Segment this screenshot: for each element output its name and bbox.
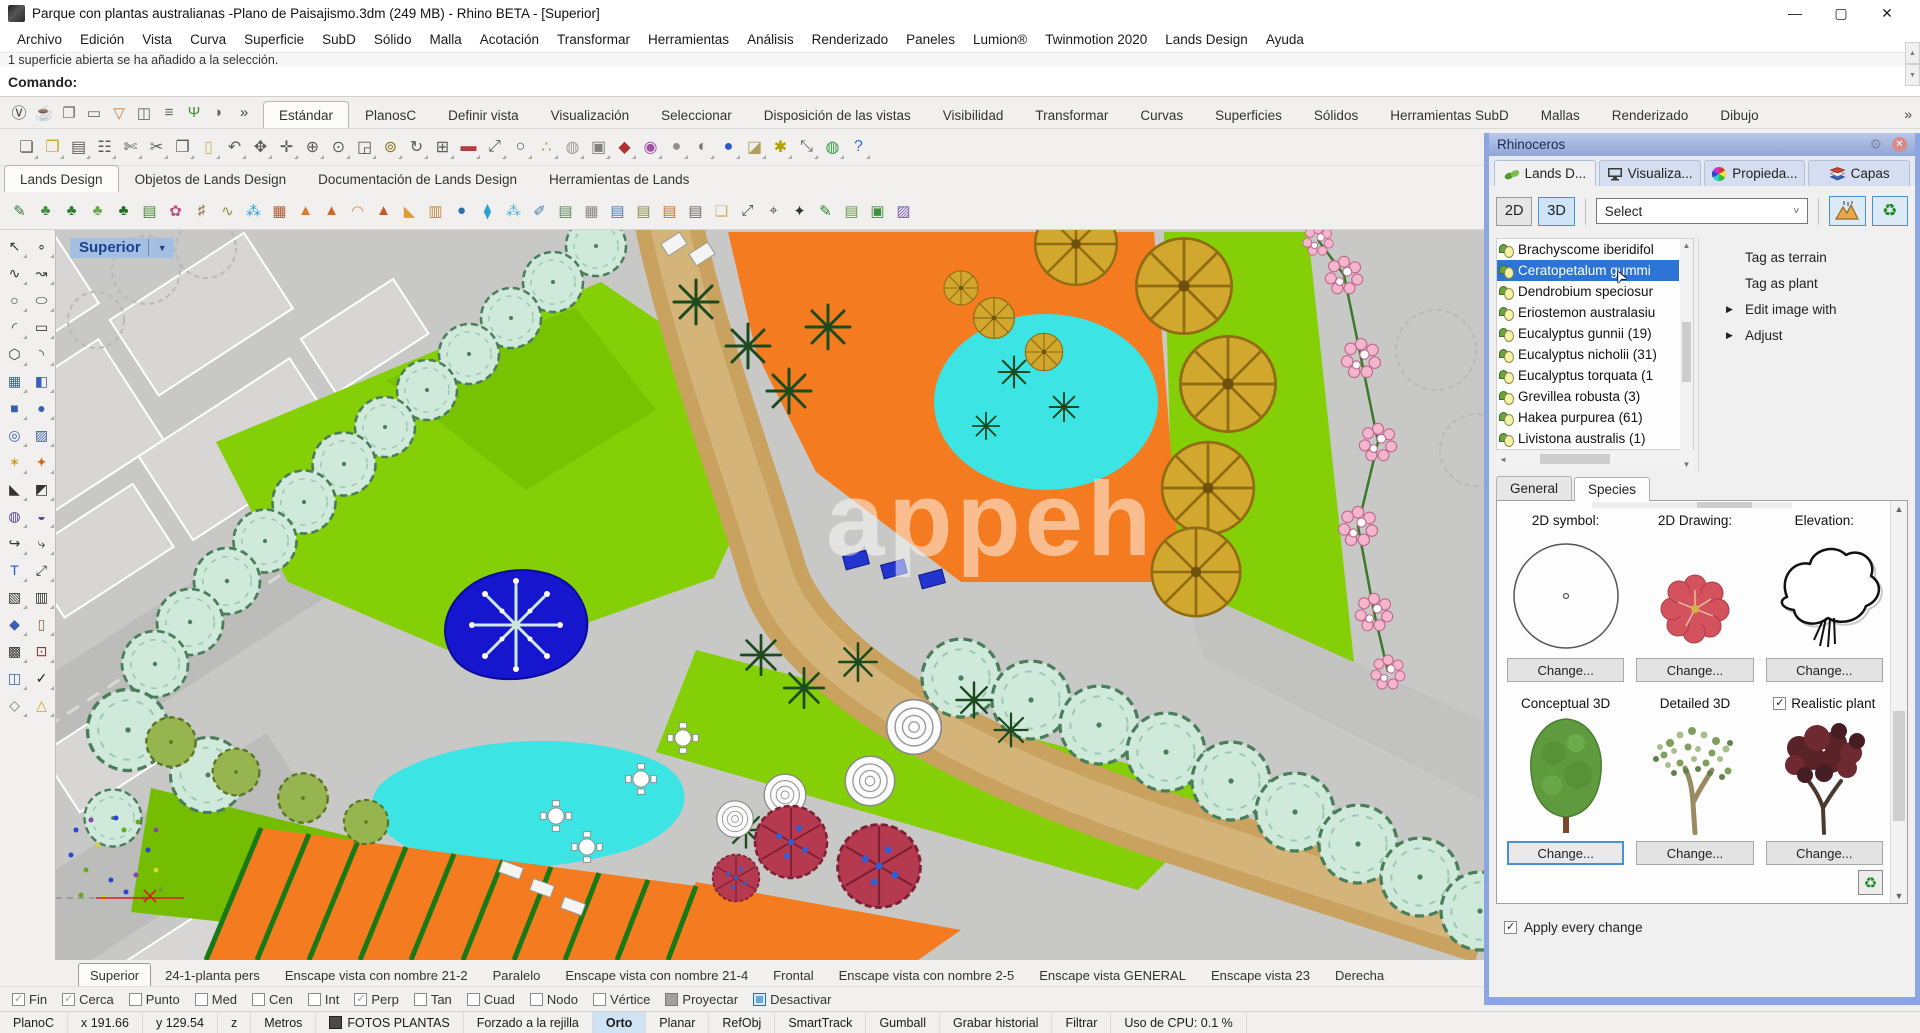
osnap-label: Med — [212, 992, 237, 1007]
scroll-down-icon[interactable]: ▼ — [1891, 888, 1907, 903]
copy-layer-icon[interactable]: ▥ — [29, 584, 54, 610]
point-edit-icon[interactable]: ∴ — [534, 134, 559, 161]
viewport-tab[interactable]: Enscape vista GENERAL — [1028, 964, 1197, 986]
color-wheel-icon[interactable]: ◉ — [638, 134, 663, 161]
status-item[interactable]: Planar — [646, 1012, 709, 1033]
cone-icon[interactable]: △ — [29, 692, 54, 718]
rotate-view-icon[interactable]: ↻ — [404, 134, 429, 161]
osnap-toggle[interactable]: Punto — [129, 992, 180, 1007]
species-list-item[interactable]: Eucalyptus nicholii (31) — [1497, 344, 1679, 365]
zoom-window-icon[interactable]: ◲ — [352, 134, 377, 161]
snapshot-icon[interactable]: ◪ — [742, 134, 767, 161]
species-list-item[interactable]: Eucalyptus gunnii (19) — [1497, 323, 1679, 344]
terrain-valley-icon[interactable]: ▲ — [320, 198, 343, 224]
plant-pair-icon[interactable]: ♣ — [34, 198, 57, 224]
surface-patch-icon[interactable]: ◧ — [29, 368, 54, 394]
globe-icon[interactable]: ● — [450, 198, 473, 224]
viewport-title[interactable]: Superior ▼ — [70, 238, 174, 258]
status-item[interactable]: Metros — [251, 1012, 316, 1033]
scale-icon[interactable]: ⤢ — [29, 557, 54, 583]
fillet-icon[interactable]: ↪ — [2, 530, 27, 556]
realistic-plant-toggle[interactable]: Realistic plant — [1764, 686, 1885, 713]
sync-button[interactable]: ♻ — [1872, 196, 1908, 226]
arc-icon[interactable]: ◜ — [2, 314, 27, 340]
trim-icon[interactable]: ◣ — [2, 476, 27, 502]
lands-tab[interactable]: Objetos de Lands Design — [119, 165, 303, 192]
new-file-icon[interactable]: ❏ — [14, 134, 39, 161]
zoom-in-icon[interactable]: ⊕ — [300, 134, 325, 161]
scissors-icon[interactable]: ✂ — [144, 134, 169, 161]
menu-item[interactable]: Renderizado — [803, 30, 898, 49]
toolbar-tab[interactable]: Renderizado — [1596, 101, 1705, 128]
osnap-toggle[interactable]: Vértice — [593, 992, 650, 1007]
species-name: Eucalyptus gunnii (19) — [1518, 326, 1652, 341]
toolbar-tab[interactable]: Definir vista — [432, 101, 535, 128]
copy-icon[interactable]: ❐ — [170, 134, 195, 161]
circle-snap-icon[interactable]: ○ — [508, 134, 533, 161]
explode-icon[interactable]: ✶ — [2, 449, 27, 475]
surface-grid-icon[interactable]: ▨ — [29, 422, 54, 448]
arrange-icon[interactable]: ▧ — [2, 584, 27, 610]
render-sphere-icon[interactable]: ● — [716, 134, 741, 161]
panel-title-label: Rhinoceros — [1497, 137, 1565, 152]
scroll-down-icon[interactable]: ▼ — [1680, 458, 1693, 471]
species-list-container: Brachyscome iberidifol Ceratopetalum gum… — [1496, 238, 1694, 472]
context-menu-item[interactable]: Tag as plant — [1745, 276, 1908, 291]
tag-terrain-button[interactable] — [1829, 196, 1865, 226]
change-conceptual-3d-button[interactable]: Change... — [1507, 841, 1624, 865]
status-item[interactable]: SmartTrack — [775, 1012, 866, 1033]
tab-lands-design[interactable]: Lands D... — [1494, 160, 1596, 186]
zoom-extents-icon[interactable]: ⊚ — [378, 134, 403, 161]
paste-icon[interactable]: ▯ — [196, 134, 221, 161]
status-item[interactable]: y 129.54 — [143, 1012, 218, 1033]
clipper-icon[interactable]: ◗ — [208, 101, 230, 125]
viewport-tab[interactable]: Superior — [78, 963, 151, 986]
toolbar-tab[interactable]: Visualización — [535, 101, 646, 128]
command-prompt-label: Comando: — [8, 74, 77, 90]
tree-icon[interactable]: ♣ — [60, 198, 83, 224]
osnap-label: Nodo — [547, 992, 578, 1007]
toolbar-tab[interactable]: Curvas — [1124, 101, 1199, 128]
detail-vscrollbar[interactable]: ▲ ▼ — [1890, 501, 1907, 903]
video-list-icon[interactable]: ▤ — [840, 198, 863, 224]
species-list-item[interactable]: Dendrobium speciosur — [1497, 281, 1679, 302]
mesh-icon[interactable]: ◇ — [2, 692, 27, 718]
flowerbed-icon[interactable]: ✿ — [164, 198, 187, 224]
context-menu-item[interactable]: Adjust — [1745, 328, 1908, 343]
toolbar-tab-strip: Ⓥ☕❐▭▽◫≡Ψ◗» EstándarPlanosCDefinir vistaV… — [0, 97, 1920, 129]
change-symbol-2d-button[interactable]: Change... — [1507, 658, 1624, 682]
plant-list-doc-icon[interactable]: ▤ — [554, 198, 577, 224]
viewport-title-label: Superior — [79, 239, 141, 256]
extract-icon[interactable]: ✦ — [29, 449, 54, 475]
context-menu-item[interactable]: Tag as terrain — [1745, 250, 1908, 265]
check-icon[interactable]: ✓ — [29, 665, 54, 691]
menu-item[interactable]: Acotación — [471, 30, 548, 49]
toolbar-tab[interactable]: Mallas — [1525, 101, 1596, 128]
osnap-checkbox[interactable] — [593, 993, 606, 1006]
autumn-doc-icon[interactable]: ▤ — [658, 198, 681, 224]
osnap-toggle[interactable]: Fin — [12, 992, 47, 1007]
circle-icon[interactable]: ○ — [2, 287, 27, 313]
text-icon[interactable]: T — [2, 557, 27, 583]
scale-arrows-icon[interactable]: ⤡ — [794, 134, 819, 161]
water-drop-icon[interactable]: ⧫ — [476, 198, 499, 224]
help-icon[interactable]: ? — [846, 134, 871, 161]
forest-icon[interactable]: ♣ — [112, 198, 135, 224]
panel-gear-icon[interactable]: ⚙ — [1869, 136, 1882, 153]
detail-hscrollbar[interactable] — [1592, 502, 1792, 508]
surface-points-icon[interactable]: ▦ — [2, 368, 27, 394]
osnap-checkbox[interactable] — [62, 993, 75, 1006]
species-list-item[interactable]: Brachyscome iberidifol — [1497, 239, 1679, 260]
viewport-tab-bar: Superior24-1-planta persEnscape vista co… — [0, 960, 1484, 986]
site-plan[interactable]: appeh — [56, 230, 1484, 960]
loft-icon[interactable]: ◫ — [2, 665, 27, 691]
osnap-label: Cerca — [79, 992, 114, 1007]
species-name: Livistona australis (1) — [1518, 431, 1646, 446]
lock-icon[interactable]: ▣ — [586, 134, 611, 161]
maximize-button[interactable]: ▢ — [1818, 1, 1864, 25]
scroll-left-icon[interactable]: ◄ — [1496, 455, 1510, 464]
status-item[interactable]: Gumball — [866, 1012, 940, 1033]
shaded-sphere-icon[interactable]: ● — [664, 134, 689, 161]
osnap-checkbox[interactable] — [308, 993, 321, 1006]
osnap-toggle[interactable]: Perp — [354, 992, 398, 1007]
zoning-doc-icon[interactable]: ▦ — [580, 198, 603, 224]
ellipse-icon[interactable]: ⬭ — [29, 287, 54, 313]
undo-icon[interactable]: ↶ — [222, 134, 247, 161]
lands-design-tabs: Lands DesignObjetos de Lands DesignDocum… — [0, 166, 1484, 192]
earth-icon[interactable]: ◍ — [820, 134, 845, 161]
toolbar-tab[interactable]: Disposición de las vistas — [748, 101, 927, 128]
fence-icon[interactable]: ♯ — [190, 198, 213, 224]
sync-realistic-button[interactable]: ♻ — [1858, 870, 1883, 895]
infinite-plane-icon[interactable]: ▽ — [108, 101, 130, 125]
select-dropdown[interactable]: Select ˅ — [1596, 198, 1809, 224]
apply-change-checkbox[interactable] — [1504, 921, 1517, 934]
scroll-down-icon[interactable]: ▼ — [1905, 64, 1920, 86]
watering-doc-icon[interactable]: ▤ — [606, 198, 629, 224]
terrain-slope-icon[interactable]: ◣ — [398, 198, 421, 224]
osnap-toggle[interactable]: Proyectar — [665, 992, 738, 1007]
scroll-up-icon[interactable]: ▲ — [1680, 239, 1693, 252]
leaf-icon — [1504, 167, 1520, 181]
osnap-checkbox[interactable] — [530, 993, 543, 1006]
torus-icon[interactable]: ◎ — [2, 422, 27, 448]
command-scrollbar[interactable]: ▲ ▼ — [1905, 42, 1920, 86]
species-list-item[interactable]: Hakea purpurea (61) — [1497, 407, 1679, 428]
four-viewports-icon[interactable]: ⊞ — [430, 134, 455, 161]
render-photo-icon[interactable]: ▨ — [892, 198, 915, 224]
status-item[interactable]: PlanoC — [0, 1012, 68, 1033]
status-item[interactable]: FOTOS PLANTAS — [316, 1012, 463, 1033]
walk-person-icon[interactable]: ✦ — [788, 198, 811, 224]
panel-title-bar[interactable]: Rhinoceros ⚙ ✕ — [1489, 133, 1915, 156]
lands-tab[interactable]: Lands Design — [4, 165, 119, 192]
status-item[interactable]: x 191.66 — [68, 1012, 143, 1033]
light-gen-icon[interactable]: ≡ — [158, 101, 180, 125]
boolean-diff-icon[interactable]: ◒ — [29, 503, 54, 529]
earthmoving-truck-icon[interactable]: ▥ — [424, 198, 447, 224]
species-list-item[interactable]: Livistona australis (1) — [1497, 428, 1679, 449]
menu-item[interactable]: Análisis — [738, 30, 803, 49]
osnap-checkbox[interactable] — [665, 993, 678, 1006]
viewport[interactable]: Superior ▼ — [55, 230, 1484, 960]
plant-icon — [1499, 327, 1514, 341]
species-name: Hakea purpurea (61) — [1518, 410, 1643, 425]
command-prompt[interactable]: Comando: — [0, 67, 1920, 97]
menu-item[interactable]: Paneles — [897, 30, 964, 49]
terrain-edit-icon[interactable]: ✎ — [8, 198, 31, 224]
zoom-dynamic-icon[interactable]: ⊙ — [326, 134, 351, 161]
osnap-toggle[interactable]: Cuad — [467, 992, 515, 1007]
polyline-icon[interactable]: ∿ — [2, 260, 27, 286]
status-item[interactable]: Orto — [593, 1012, 646, 1033]
viewport-tab[interactable]: Enscape vista con nombre 21-4 — [554, 964, 759, 986]
species-name: Grevillea robusta (3) — [1518, 389, 1640, 404]
menu-item[interactable]: Edición — [71, 30, 133, 49]
plant-icon — [1499, 432, 1514, 446]
panel-close-icon[interactable]: ✕ — [1892, 137, 1907, 152]
shrub-row-icon[interactable]: ♣ — [86, 198, 109, 224]
menu-item[interactable]: Twinmotion 2020 — [1036, 30, 1156, 49]
proxy-box-icon[interactable]: ◫ — [133, 101, 155, 125]
toolbar-tab[interactable]: Sólidos — [1298, 101, 1374, 128]
osnap-label: Tan — [431, 992, 452, 1007]
monitor-icon — [1607, 166, 1623, 181]
species-name: Eriostemon australasiu — [1518, 305, 1655, 320]
osnap-label: Cen — [269, 992, 293, 1007]
species-list-vscrollbar[interactable]: ▲ ▼ — [1680, 239, 1693, 471]
change-drawing-2d-button[interactable]: Change... — [1636, 658, 1753, 682]
lands-tab[interactable]: Documentación de Lands Design — [302, 165, 533, 192]
edit-doc-icon[interactable]: ▤ — [632, 198, 655, 224]
irrigation-icon[interactable]: ⁂ — [242, 198, 265, 224]
menu-item[interactable]: Herramientas — [639, 30, 738, 49]
toolbar-overflow-icon[interactable]: » — [233, 101, 255, 125]
tab-general[interactable]: General — [1496, 476, 1572, 500]
change-detailed-3d-button[interactable]: Change... — [1636, 841, 1753, 865]
array-path-icon[interactable]: ⊡ — [29, 638, 54, 664]
toolbar-tab[interactable]: Transformar — [1019, 101, 1124, 128]
hedge-icon[interactable]: ▤ — [138, 198, 161, 224]
sprinklers-icon[interactable]: ⁂ — [502, 198, 525, 224]
hose-icon[interactable]: ✐ — [528, 198, 551, 224]
osnap-checkbox[interactable] — [12, 993, 25, 1006]
viewport-tab[interactable]: Paralelo — [482, 964, 552, 986]
lamp-icon[interactable]: ◍ — [560, 134, 585, 161]
osnap-toggle[interactable]: Med — [195, 992, 237, 1007]
frame-buffer-icon[interactable]: ▭ — [83, 101, 105, 125]
species-list-item[interactable]: Eriostemon australasiu — [1497, 302, 1679, 323]
menu-item[interactable]: Lumion® — [964, 30, 1036, 49]
toolbar-tab[interactable]: Estándar — [263, 101, 349, 128]
status-item[interactable]: Uso de CPU: 0.1 % — [1111, 1012, 1246, 1033]
lands-design-toolbar: ✎♣♣♣♣▤✿♯∿⁂▦▲▲◠▲◣▥●⧫⁂✐▤▦▤▤▤▤❏⤢⌖✦✎▤▣▨ — [0, 192, 1484, 230]
tab-visualization[interactable]: Visualiza... — [1599, 160, 1701, 186]
tab-properties[interactable]: Propieda... — [1704, 160, 1806, 186]
menu-item[interactable]: Malla — [420, 30, 470, 49]
gear-tools-icon[interactable]: ✱ — [768, 134, 793, 161]
osnap-checkbox[interactable] — [753, 993, 766, 1006]
osnap-checkbox[interactable] — [252, 993, 265, 1006]
terrain-icon — [1835, 201, 1859, 221]
pan-hand-icon[interactable]: ✥ — [248, 134, 273, 161]
minimize-button[interactable]: — — [1772, 1, 1818, 25]
halfshade-sphere-icon[interactable]: ◐ — [690, 134, 715, 161]
point-icon[interactable]: ∘ — [29, 233, 54, 259]
tabs-overflow-icon[interactable]: » — [1896, 106, 1920, 128]
plant-book-icon[interactable]: ▣ — [866, 198, 889, 224]
camera-tripod-icon[interactable]: ⌖ — [762, 198, 785, 224]
species-list-hscrollbar[interactable]: ◄ ► — [1496, 452, 1694, 466]
save-icon[interactable]: ▤ — [66, 134, 91, 161]
species-name: Brachyscome iberidifol — [1518, 242, 1654, 257]
elevation-preview — [1764, 530, 1885, 656]
move-icon[interactable]: ✛ — [274, 134, 299, 161]
osnap-checkbox[interactable] — [467, 993, 480, 1006]
osnap-label: Int — [325, 992, 339, 1007]
osnap-label: Cuad — [484, 992, 515, 1007]
blend-icon[interactable]: ⤷ — [29, 530, 54, 556]
toolbar-tab[interactable]: Visibilidad — [927, 101, 1020, 128]
tab-species[interactable]: Species — [1574, 477, 1650, 501]
distance-icon[interactable]: ⤢ — [482, 134, 507, 161]
render-teapot-icon[interactable]: ☕ — [33, 101, 55, 125]
osnap-toggle[interactable]: Tan — [414, 992, 452, 1007]
scroll-up-icon[interactable]: ▲ — [1905, 42, 1920, 64]
change-elevation-button[interactable]: Change... — [1766, 658, 1883, 682]
status-item[interactable]: Grabar historial — [940, 1012, 1052, 1033]
conceptual-3d-label: Conceptual 3D — [1505, 686, 1626, 713]
menu-item[interactable]: Vista — [133, 30, 181, 49]
toolbar-tab[interactable]: Superficies — [1199, 101, 1298, 128]
render-window-icon[interactable]: ❐ — [58, 101, 80, 125]
toolbar-tab[interactable]: Herramientas SubD — [1374, 101, 1525, 128]
osnap-toggle[interactable]: Cerca — [62, 992, 114, 1007]
status-bar: PlanoCx 191.66y 129.54zMetrosFOTOS PLANT… — [0, 1011, 1920, 1033]
path-icon[interactable]: ∿ — [216, 198, 239, 224]
fur-grass-icon[interactable]: Ψ — [183, 101, 205, 125]
osnap-toggle[interactable]: Cen — [252, 992, 293, 1007]
realistic-plant-checkbox[interactable] — [1773, 697, 1786, 710]
status-item[interactable]: z — [218, 1012, 251, 1033]
menu-item[interactable]: Lands Design — [1156, 30, 1257, 49]
scroll-up-icon[interactable]: ▲ — [1891, 501, 1907, 516]
toolbar-tabs: EstándarPlanosCDefinir vistaVisualizació… — [263, 101, 1896, 128]
open-folder-icon[interactable]: ❒ — [40, 134, 65, 161]
context-menu-item[interactable]: Edit image with — [1745, 302, 1908, 317]
2d-button[interactable]: 2D — [1496, 197, 1532, 226]
species-detail-box: ▲ ▼ 2D symbol: 2D Drawing: Elevation: — [1496, 500, 1908, 904]
species-list[interactable]: Brachyscome iberidifol Ceratopetalum gum… — [1496, 238, 1694, 450]
car-display-icon[interactable]: ▬ — [456, 134, 481, 161]
edit-plant-icon[interactable]: ✎ — [814, 198, 837, 224]
array-icon[interactable]: ▩ — [2, 638, 27, 664]
species-list-item[interactable]: Eucalyptus torquata (1 — [1497, 365, 1679, 386]
terrain-dune-icon[interactable]: ◠ — [346, 198, 369, 224]
osnap-checkbox[interactable] — [195, 993, 208, 1006]
viewport-tab[interactable]: Derecha — [1324, 964, 1395, 986]
viewport-tab[interactable]: Enscape vista con nombre 2-5 — [828, 964, 1026, 986]
viewport-menu-caret-icon[interactable]: ▼ — [154, 243, 171, 253]
viewport-tab[interactable]: 24-1-planta pers — [154, 964, 271, 986]
osnap-toggle[interactable]: Int — [308, 992, 339, 1007]
block-icon[interactable]: ◆ — [2, 611, 27, 637]
lands-tab[interactable]: Herramientas de Lands — [533, 165, 705, 192]
boolean-union-icon[interactable]: ◍ — [2, 503, 27, 529]
toolbar-tab[interactable]: Seleccionar — [645, 101, 748, 128]
close-button[interactable]: ✕ — [1864, 1, 1910, 25]
osnap-toggle[interactable]: Desactivar — [753, 992, 831, 1007]
menu-item[interactable]: Ayuda — [1257, 30, 1313, 49]
window-title: Parque con plantas australianas -Plano d… — [32, 6, 600, 21]
menu-item[interactable]: Archivo — [8, 30, 71, 49]
plant-icon — [1499, 306, 1514, 320]
toolbar-tab[interactable]: PlanosC — [349, 101, 432, 128]
menu-item[interactable]: SubD — [313, 30, 365, 49]
species-list-item[interactable]: Ceratopetalum gummi — [1497, 260, 1679, 281]
pipe-icon[interactable]: ▯ — [29, 611, 54, 637]
layer-shield-icon[interactable]: ◆ — [612, 134, 637, 161]
menu-item[interactable]: Sólido — [365, 30, 421, 49]
polygon-icon[interactable]: ⬡ — [2, 341, 27, 367]
cut-sheet-icon[interactable]: ✄ — [118, 134, 143, 161]
rectangle-icon[interactable]: ▭ — [29, 314, 54, 340]
menu-item[interactable]: Transformar — [548, 30, 639, 49]
status-item[interactable]: RefObj — [709, 1012, 775, 1033]
terrain-cut-icon[interactable]: ▲ — [372, 198, 395, 224]
rhino-logo-icon — [8, 5, 25, 22]
viewport-tab[interactable]: Frontal — [762, 964, 824, 986]
osnap-checkbox[interactable] — [354, 993, 367, 1006]
sphere-icon[interactable]: ● — [29, 395, 54, 421]
status-item[interactable]: Filtrar — [1052, 1012, 1111, 1033]
3d-button[interactable]: 3D — [1538, 197, 1574, 226]
tab-layers[interactable]: Capas — [1808, 160, 1910, 186]
osnap-checkbox[interactable] — [129, 993, 142, 1006]
apply-every-change-toggle[interactable]: Apply every change — [1496, 920, 1908, 935]
status-item[interactable]: Forzado a la rejilla — [464, 1012, 593, 1033]
label-icon[interactable]: ❏ — [710, 198, 733, 224]
osnap-checkbox[interactable] — [414, 993, 427, 1006]
print-icon[interactable]: ☷ — [92, 134, 117, 161]
menu-item[interactable]: Curva — [181, 30, 235, 49]
viewport-tab[interactable]: Enscape vista con nombre 21-2 — [274, 964, 479, 986]
split-icon[interactable]: ◩ — [29, 476, 54, 502]
mosaic-icon[interactable]: ▦ — [268, 198, 291, 224]
vray-logo-icon[interactable]: Ⓥ — [8, 101, 30, 125]
dimension-icon[interactable]: ⤢ — [736, 198, 759, 224]
viewport-tab[interactable]: Enscape vista 23 — [1200, 964, 1321, 986]
box-icon[interactable]: ■ — [2, 395, 27, 421]
terrain-mound-icon[interactable]: ▲ — [294, 198, 317, 224]
curve-icon[interactable]: ↝ — [29, 260, 54, 286]
toolbar-tab[interactable]: Dibujo — [1704, 101, 1774, 128]
change-realistic-button[interactable]: Change... — [1766, 841, 1883, 865]
vray-toolbar: Ⓥ☕❐▭▽◫≡Ψ◗» — [0, 97, 263, 128]
curve-blend-icon[interactable]: ◝ — [29, 341, 54, 367]
save-doc-icon[interactable]: ▤ — [684, 198, 707, 224]
recycle-icon: ♻ — [1882, 201, 1897, 221]
osnap-toggle[interactable]: Nodo — [530, 992, 578, 1007]
select-arrow-icon[interactable]: ↖ — [2, 233, 27, 259]
species-context-menu: Tag as terrainTag as plantEdit image wit… — [1698, 238, 1908, 472]
species-list-item[interactable]: Grevillea robusta (3) — [1497, 386, 1679, 407]
menu-item[interactable]: Superficie — [235, 30, 313, 49]
